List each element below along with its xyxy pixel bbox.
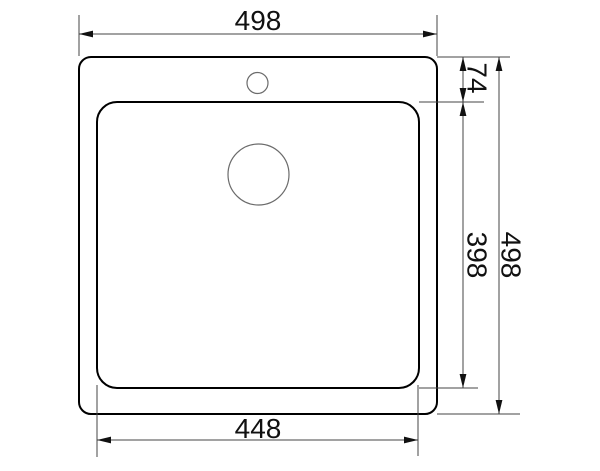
arrowhead-overall-width-end	[423, 31, 437, 38]
dimension-label-faucet-offset: 74	[462, 62, 493, 93]
dimension-label-overall-height: 498	[496, 232, 527, 279]
arrowhead-overall-height-end	[496, 400, 503, 414]
dimension-label-basin-depth: 398	[462, 232, 493, 279]
arrowhead-basin-depth-end	[460, 374, 467, 388]
sink-body-outline	[79, 57, 437, 414]
faucet-hole	[247, 73, 268, 94]
basin-outline	[97, 102, 419, 388]
arrowhead-overall-width-start	[79, 31, 93, 38]
drain-hole	[228, 144, 289, 205]
arrowhead-basin-width-end	[404, 437, 418, 444]
dimension-label-overall-width: 498	[235, 5, 282, 36]
dimension-label-basin-width: 448	[235, 413, 282, 444]
sink-technical-drawing: 49874398498448	[0, 0, 600, 471]
arrowhead-basin-depth-start	[460, 102, 467, 116]
arrowhead-basin-width-start	[97, 437, 111, 444]
drawing-canvas: 49874398498448	[0, 0, 600, 471]
arrowhead-overall-height-start	[496, 57, 503, 71]
